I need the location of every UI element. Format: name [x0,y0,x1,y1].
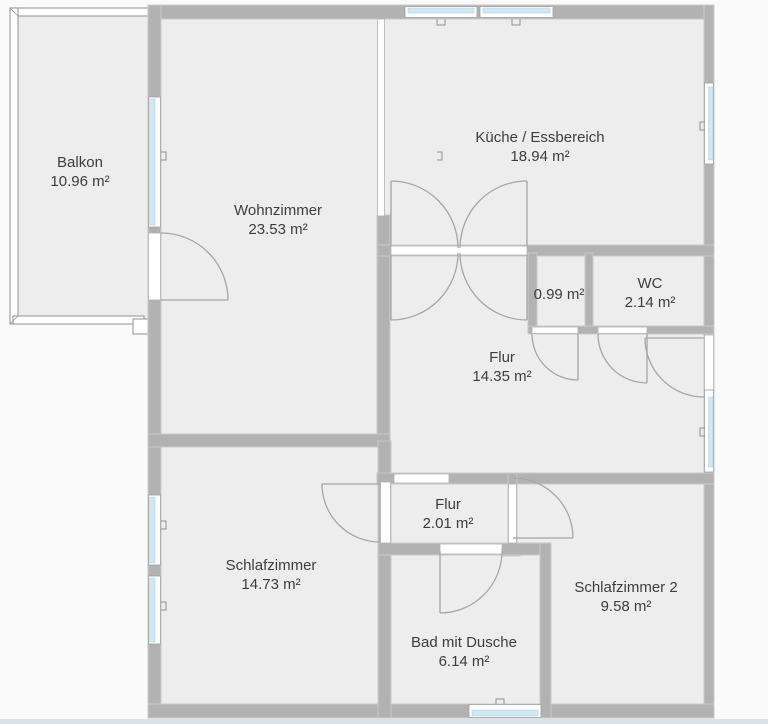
opening-wc-door [598,327,647,334]
wall-wohnzimmer-schlafzimmer [148,434,390,447]
room-name: Flur [472,348,531,367]
room-area: 9.58 m² [574,597,677,616]
opening-schlafzimmer2-door [509,484,517,543]
room-label-wc: WC 2.14 m² [625,274,676,312]
window-wohnzimmer-left [149,97,161,227]
window-kueche-right [705,83,714,164]
balcony-rail-step [133,319,148,334]
window-schlafzimmer-left-2 [149,576,161,644]
room-area: 14.35 m² [472,367,531,386]
room-name: Flur [423,495,474,514]
room-label-schlafzimmer2: Schlafzimmer 2 9.58 m² [574,578,677,616]
balcony-rail-bottom [13,316,144,324]
opening-wohnzimmer-kueche [378,19,385,216]
opening-entrance-door [705,335,714,396]
room-label-flur2: Flur 2.01 m² [423,495,474,533]
window-flur-right [705,390,714,472]
window-kueche-top-2 [480,7,553,18]
room-area: 10.96 m² [50,172,109,191]
room-area: 2.01 m² [423,514,474,533]
window-schlafzimmer-left-1 [149,495,161,565]
room-label-kueche: Küche / Essbereich 18.94 m² [475,128,604,166]
room-name: Schlafzimmer 2 [574,578,677,597]
room-label-bad: Bad mit Dusche 6.14 m² [411,633,517,671]
room-area: 2.14 m² [625,293,676,312]
room-label-abstellraum: 0.99 m² [534,285,585,304]
room-name: WC [625,274,676,293]
opening-schlafzimmer-door [381,482,391,543]
room-name: Küche / Essbereich [475,128,604,147]
room-name: Bad mit Dusche [411,633,517,652]
opening-abstellraum-door [532,327,578,334]
room-area: 6.14 m² [411,652,517,671]
opening-double-door [391,246,527,255]
room-label-flur: Flur 14.35 m² [472,348,531,386]
room-area: 23.53 m² [234,220,322,239]
balcony-rail-top [13,8,148,16]
canvas-bottom-edge [0,719,768,724]
room-label-balkon: Balkon 10.96 m² [50,153,109,191]
opening-bad-door [440,544,502,554]
room-name: Schlafzimmer [226,556,317,575]
opening-balkon-door [149,233,161,300]
room-area: 18.94 m² [475,147,604,166]
wall-exterior-bottom [148,704,714,718]
window-kueche-top-1 [405,7,477,18]
wall-bad-right [540,543,551,718]
room-name: Balkon [50,153,109,172]
room-label-wohnzimmer: Wohnzimmer 23.53 m² [234,201,322,239]
opening-flur-passage [394,474,449,483]
room-area: 0.99 m² [534,285,585,304]
balcony-rail-left [10,8,18,324]
room-label-schlafzimmer: Schlafzimmer 14.73 m² [226,556,317,594]
wall-abstellraum-wc-divider [585,253,593,334]
room-name: Wohnzimmer [234,201,322,220]
floorplan-canvas: Balkon 10.96 m² Wohnzimmer 23.53 m² Küch… [0,0,768,724]
window-bad-bottom [469,705,541,718]
room-area: 14.73 m² [226,575,317,594]
